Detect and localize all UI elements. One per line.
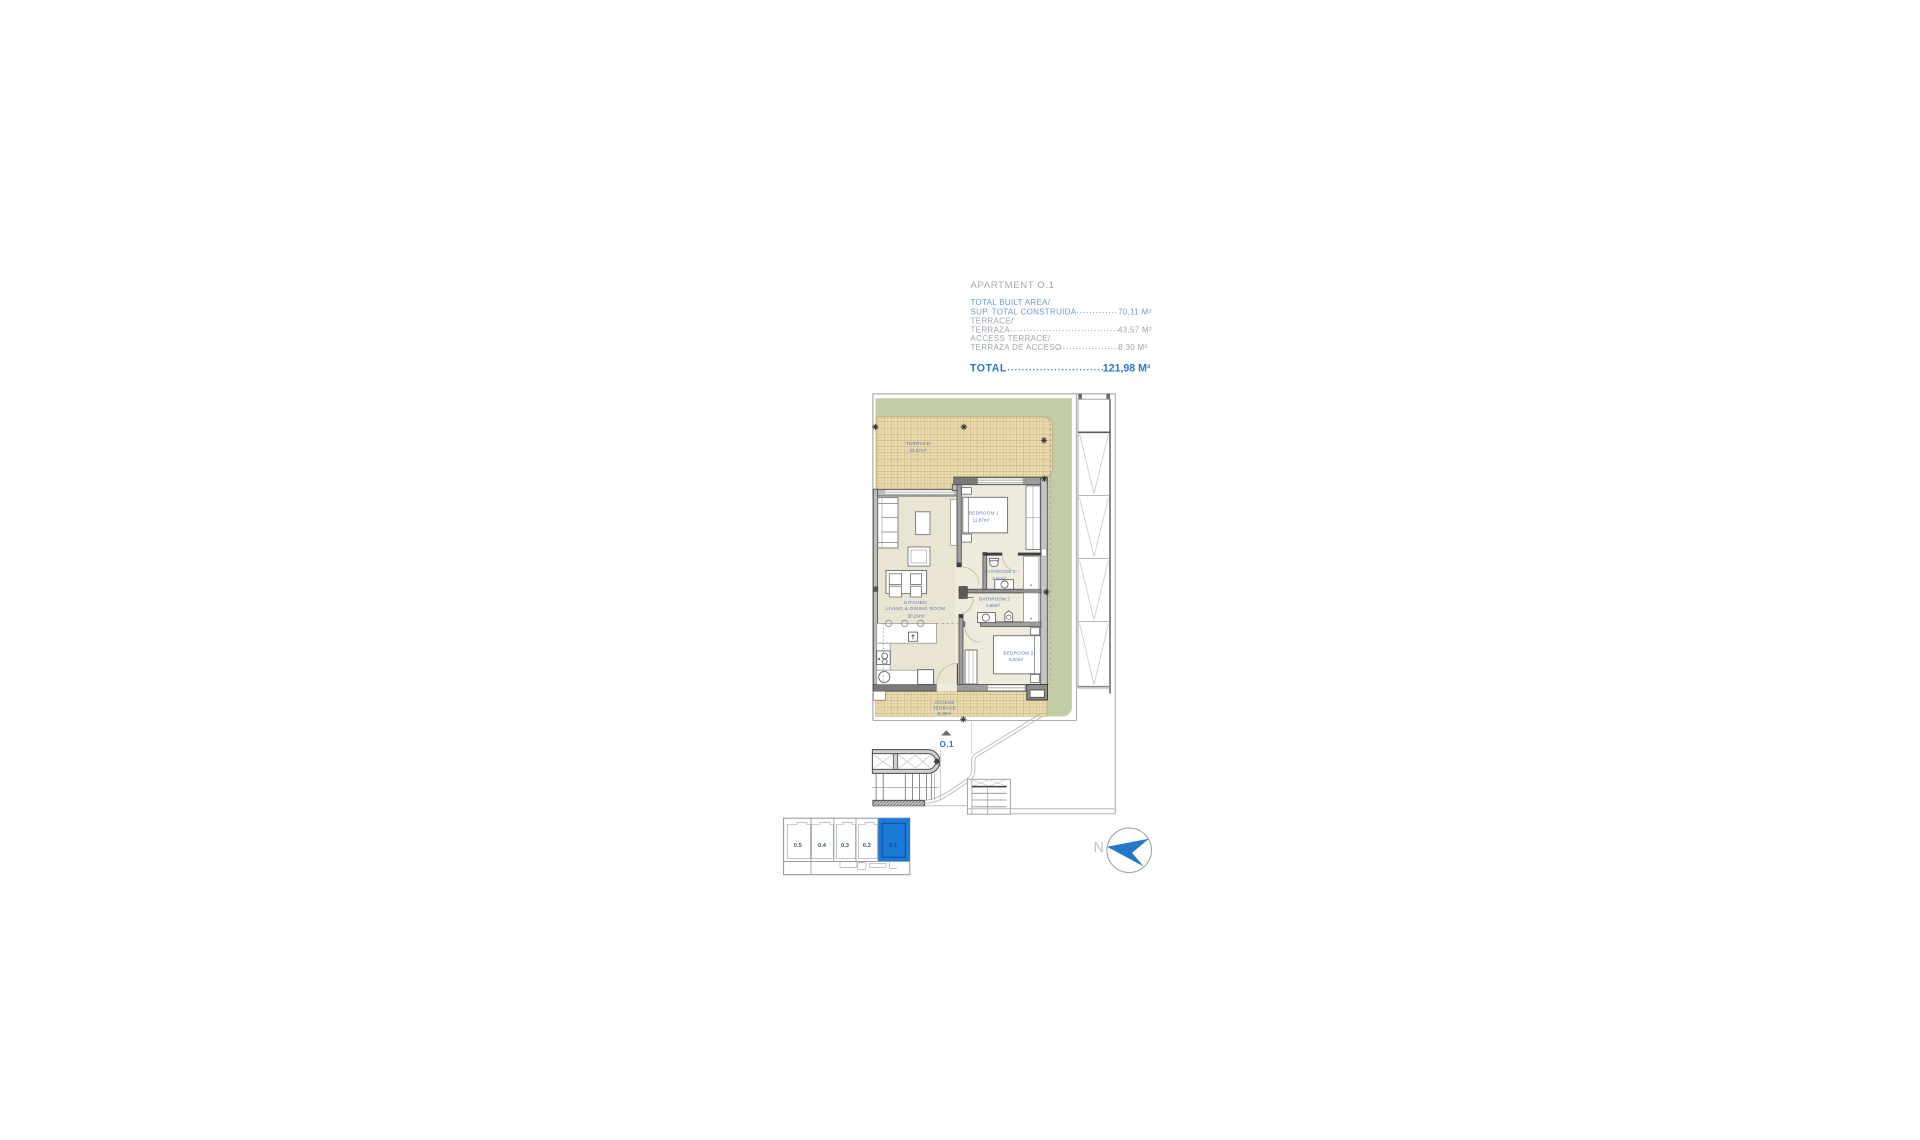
svg-text:70,11 M²: 70,11 M² xyxy=(1118,307,1151,316)
svg-text:3,52m²: 3,52m² xyxy=(992,576,1006,581)
svg-text:121,98 M²: 121,98 M² xyxy=(1103,363,1151,375)
svg-text:BATHROOM 1: BATHROOM 1 xyxy=(985,569,1016,574)
svg-text:0.3: 0.3 xyxy=(841,843,850,849)
svg-text:43,57m²: 43,57m² xyxy=(909,448,927,453)
svg-text:LIVING & DINING ROOM: LIVING & DINING ROOM xyxy=(886,606,945,611)
svg-text:TERRACE: TERRACE xyxy=(906,441,931,446)
svg-text:30,29m²: 30,29m² xyxy=(907,613,925,618)
svg-text:4,65m²: 4,65m² xyxy=(986,603,1000,608)
svg-text:BATHROOM 2: BATHROOM 2 xyxy=(979,596,1010,601)
svg-text:0.2: 0.2 xyxy=(863,843,871,849)
svg-text:SUP. TOTAL CONSTRUIDA: SUP. TOTAL CONSTRUIDA xyxy=(971,307,1077,316)
svg-text:0.1: 0.1 xyxy=(889,843,898,849)
svg-text:TERRAZA: TERRAZA xyxy=(971,325,1011,334)
svg-text:TERRAZA DE ACCESO: TERRAZA DE ACCESO xyxy=(971,343,1062,352)
svg-text:N: N xyxy=(1094,840,1104,856)
svg-text:0.5: 0.5 xyxy=(794,843,803,849)
svg-text:43,57 M²: 43,57 M² xyxy=(1118,325,1152,334)
svg-text:11,87m²: 11,87m² xyxy=(973,518,990,523)
svg-text:TOTAL BUILT AREA/: TOTAL BUILT AREA/ xyxy=(971,298,1051,307)
svg-text:TOTAL: TOTAL xyxy=(970,363,1007,375)
svg-text:8,30m²: 8,30m² xyxy=(938,711,952,716)
svg-text:TERRACE/: TERRACE/ xyxy=(971,316,1014,325)
svg-text:8,30 M²: 8,30 M² xyxy=(1118,343,1147,352)
svg-text:APARTMENT O.1: APARTMENT O.1 xyxy=(971,280,1055,291)
svg-text:O.1: O.1 xyxy=(940,740,954,749)
svg-text:KITCHEN: KITCHEN xyxy=(904,600,927,605)
svg-text:TERRACE: TERRACE xyxy=(933,705,956,710)
svg-text:0.4: 0.4 xyxy=(818,843,827,849)
svg-text:BEDROOM 2: BEDROOM 2 xyxy=(1003,650,1033,655)
svg-text:ACCESS: ACCESS xyxy=(935,700,955,705)
svg-text:BEDROOM 1: BEDROOM 1 xyxy=(969,511,999,516)
svg-text:ACCESS TERRACE/: ACCESS TERRACE/ xyxy=(971,334,1051,343)
svg-text:9,00m²: 9,00m² xyxy=(1009,657,1024,662)
